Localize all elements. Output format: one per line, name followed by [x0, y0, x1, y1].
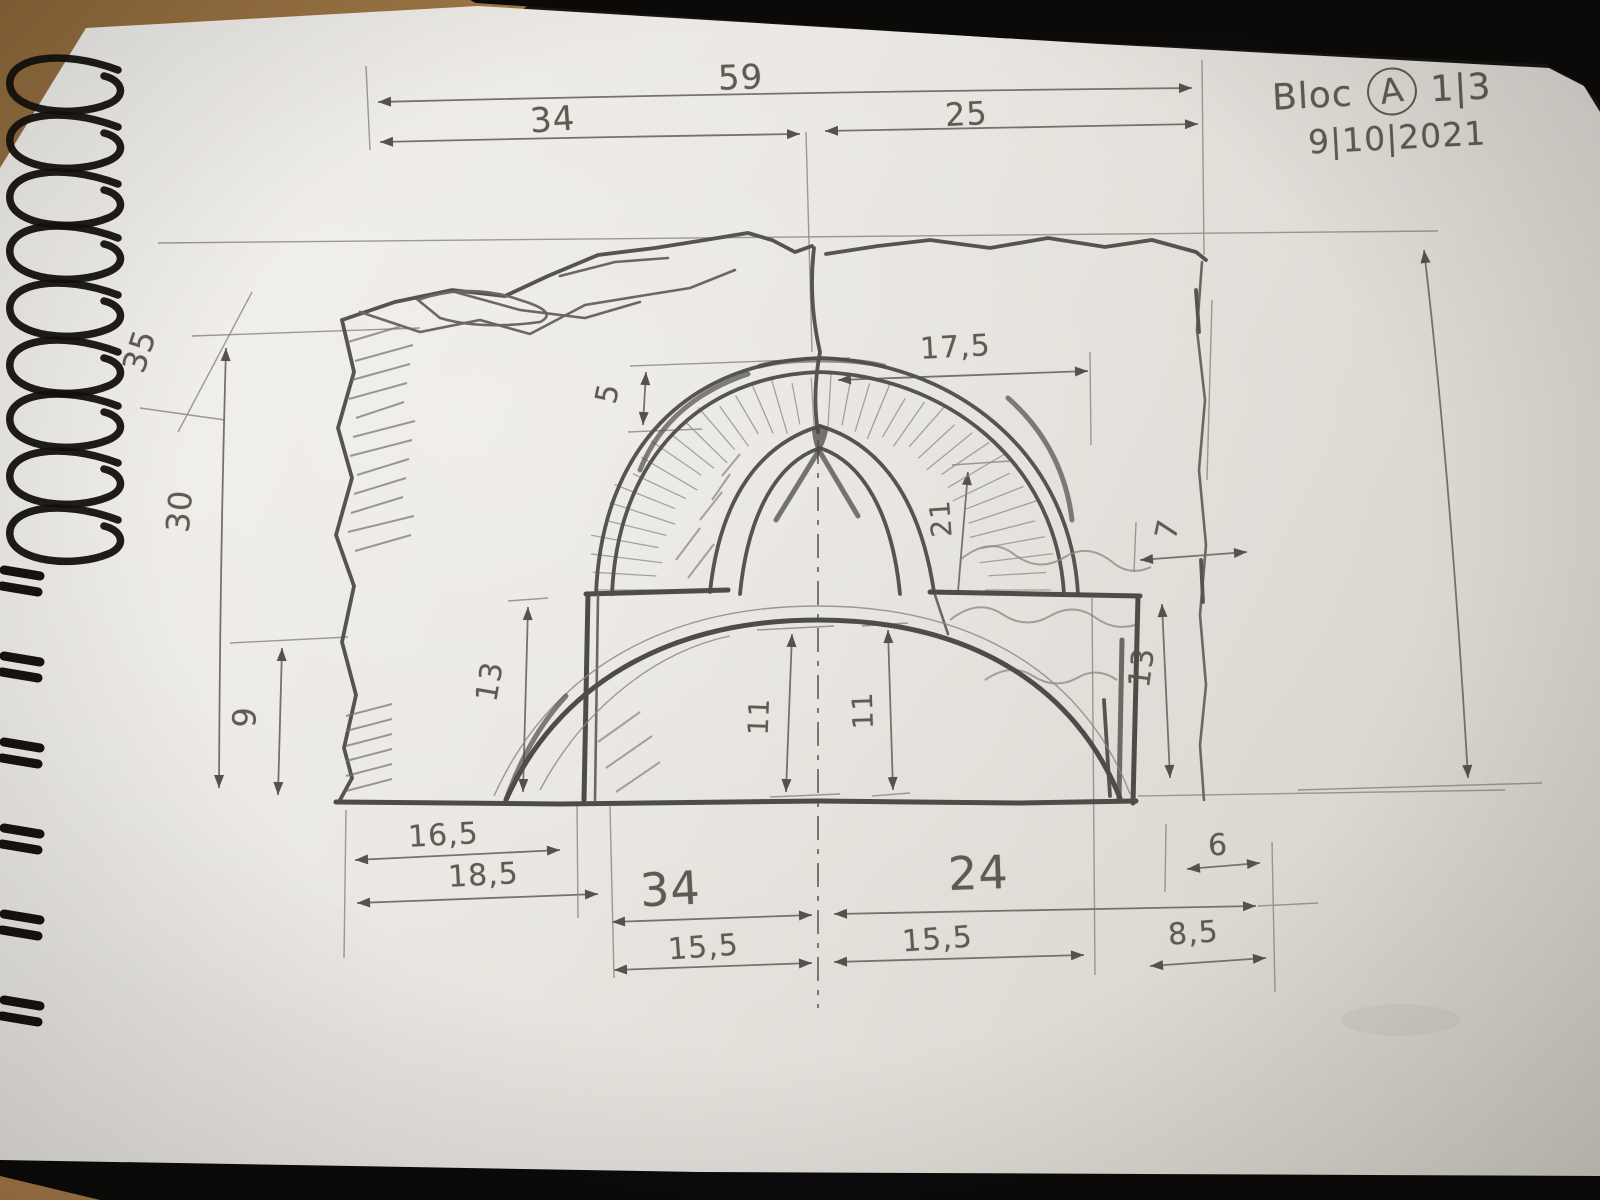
spiral-binding: [0, 0, 1600, 1200]
photo-of-sketchbook: 59 34 25 35 30 9 13 5 17,5 21 7 13 11 11…: [0, 0, 1600, 1200]
